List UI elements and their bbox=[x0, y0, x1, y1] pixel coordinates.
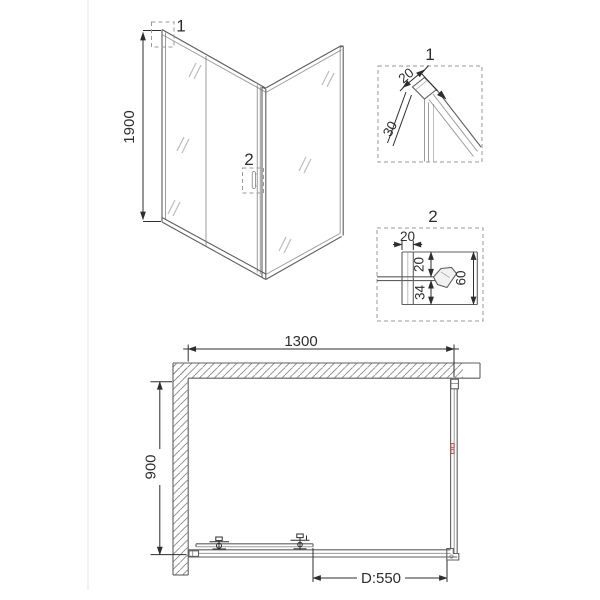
detail-2-upper-label: 20 bbox=[412, 257, 427, 272]
callout-1-label: 1 bbox=[176, 17, 185, 36]
plan-depth-label: 900 bbox=[143, 454, 160, 479]
detail-2-title: 2 bbox=[428, 207, 437, 226]
height-dimension: 1900 bbox=[121, 31, 161, 222]
plan-view: 1300 900 D:550 bbox=[143, 333, 481, 587]
brand-mark-red bbox=[451, 444, 454, 454]
detail-2-lower-label: 34 bbox=[413, 285, 428, 301]
sliding-door-plan bbox=[196, 544, 313, 547]
bottom-track bbox=[188, 550, 457, 557]
detail-1-profile bbox=[413, 78, 482, 162]
detail-2-view: 2 20 20 34 60 bbox=[377, 207, 483, 321]
door-edge-profile bbox=[257, 85, 260, 275]
wall-top bbox=[173, 363, 480, 378]
detail-2-dimensions: 20 20 34 60 bbox=[393, 229, 474, 305]
detail-1-dimensions: 20 30 bbox=[380, 65, 447, 146]
plan-width-label: 1300 bbox=[284, 333, 317, 350]
wall-left bbox=[173, 363, 188, 575]
door-handle bbox=[252, 172, 257, 189]
callout-1: 1 bbox=[152, 17, 186, 48]
side-panel-plan bbox=[447, 379, 459, 560]
detail-2-top-width-label: 20 bbox=[400, 229, 415, 244]
detail-1-view: 1 20 30 bbox=[378, 45, 482, 162]
perspective-view: 1900 1 2 bbox=[121, 17, 343, 280]
callout-2-label: 2 bbox=[244, 150, 253, 169]
plan-door-label: D:550 bbox=[361, 570, 401, 587]
detail-1-title: 1 bbox=[425, 45, 434, 64]
dim-height-label: 1900 bbox=[121, 110, 138, 143]
side-panel-frame bbox=[266, 46, 343, 280]
roller-left bbox=[210, 537, 230, 550]
detail-1-width-label: 20 bbox=[396, 65, 417, 86]
detail-2-total-height-label: 60 bbox=[454, 270, 469, 285]
roller-right bbox=[291, 534, 310, 550]
wall-bracket bbox=[189, 551, 199, 557]
shower-enclosure-technical-drawing: 1900 1 2 1 20 bbox=[0, 0, 600, 600]
drawing-svg: 1900 1 2 1 20 bbox=[0, 0, 600, 600]
